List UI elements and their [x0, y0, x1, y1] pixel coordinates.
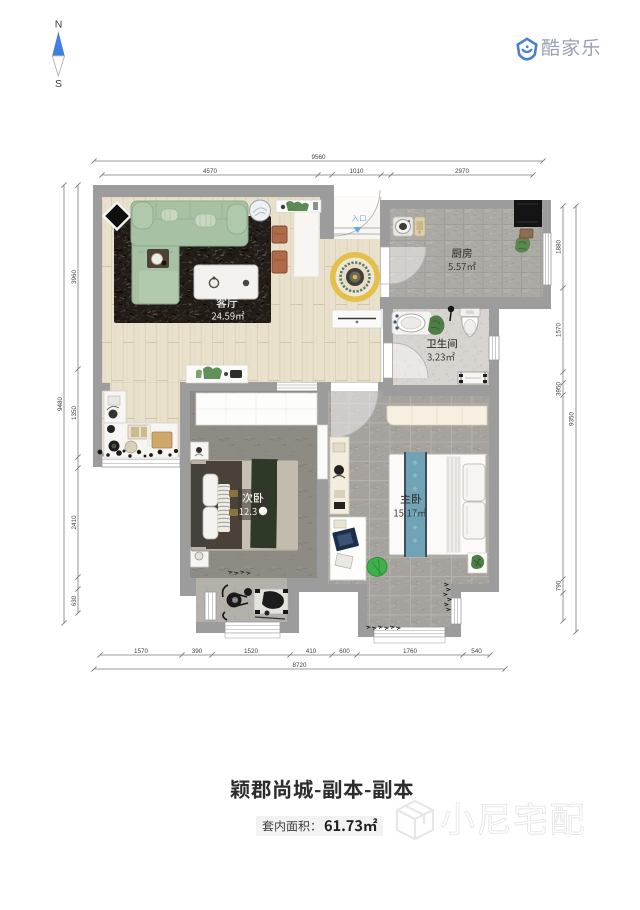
svg-text:9560: 9560	[311, 154, 326, 161]
svg-text:4570: 4570	[203, 168, 218, 175]
svg-text:1880: 1880	[556, 240, 563, 255]
svg-text:1570: 1570	[134, 648, 149, 655]
svg-text:1520: 1520	[244, 648, 259, 655]
svg-text:9350: 9350	[569, 412, 576, 427]
svg-text:2410: 2410	[71, 515, 78, 530]
svg-text:390: 390	[192, 648, 203, 655]
svg-text:3950: 3950	[556, 382, 563, 397]
svg-text:540: 540	[471, 648, 482, 655]
svg-text:1760: 1760	[403, 648, 418, 655]
svg-text:3960: 3960	[71, 270, 78, 285]
svg-text:600: 600	[339, 648, 350, 655]
svg-text:S: S	[55, 78, 62, 90]
svg-text:410: 410	[306, 648, 317, 655]
svg-text:2970: 2970	[455, 168, 470, 175]
svg-text:1350: 1350	[71, 406, 78, 421]
svg-text:1010: 1010	[349, 168, 364, 175]
svg-text:790: 790	[556, 580, 563, 591]
svg-text:9480: 9480	[57, 397, 64, 412]
svg-text:8720: 8720	[292, 662, 307, 669]
svg-text:1570: 1570	[556, 323, 563, 338]
svg-text:630: 630	[71, 595, 78, 606]
svg-text:N: N	[55, 19, 63, 31]
